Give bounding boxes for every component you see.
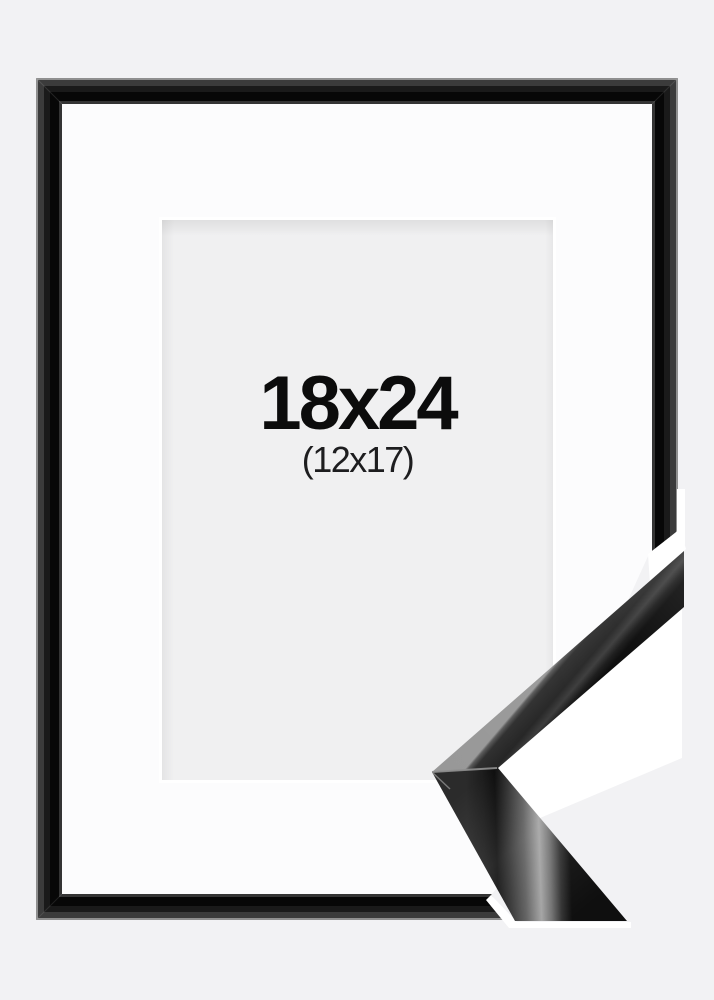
frame-product-illustration (0, 0, 714, 1000)
opening-left-inner-shadow (162, 220, 174, 780)
picture-opening (162, 220, 553, 780)
product-photo-frame-black: 18x24 (12x17) (0, 0, 714, 1000)
opening-top-inner-shadow (162, 220, 553, 236)
